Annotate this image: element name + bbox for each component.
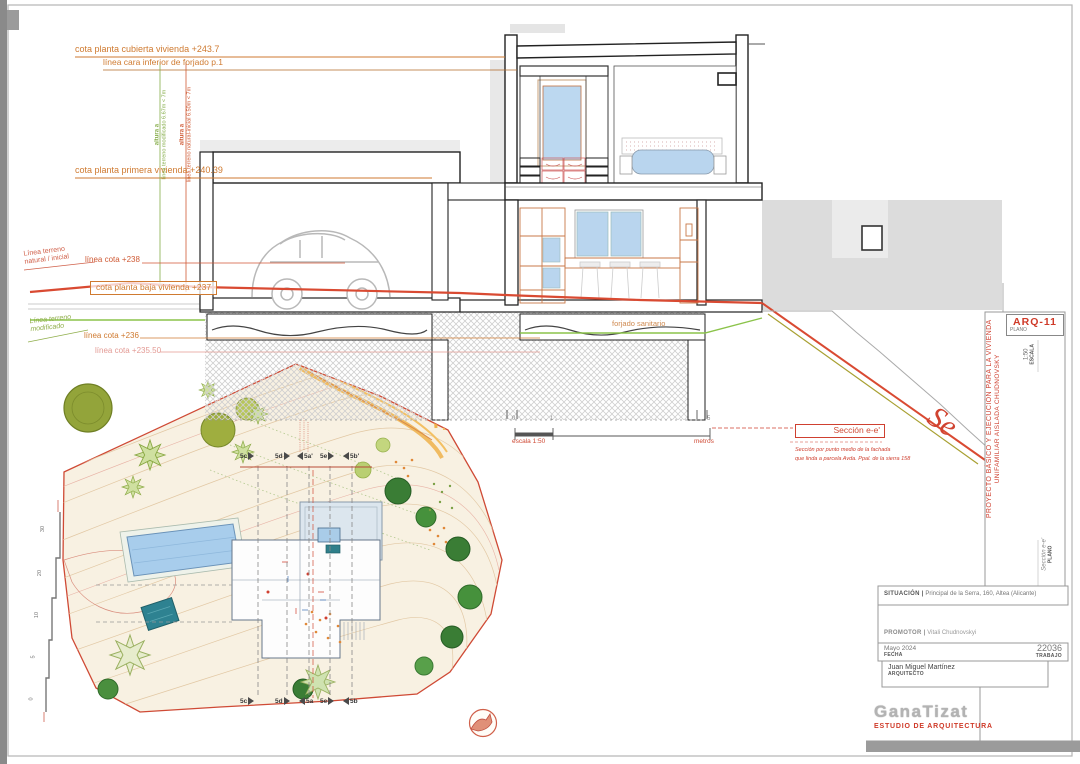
altura-mod-value: línea terreno modificado 6.67m < 7m — [161, 75, 167, 195]
annotation-cota-primera: cota planta primera vivienda +240.39 — [75, 165, 223, 175]
arrow-right-icon — [284, 452, 290, 460]
fecha-value: Mayo 2024 — [884, 645, 916, 652]
scale-label: escala 1:50 — [512, 438, 545, 445]
arrow-right-icon — [328, 697, 334, 705]
marker-label: 5c — [240, 698, 247, 705]
drawing-sheet: cota planta cubierta vivienda +243.7 lín… — [0, 0, 1080, 764]
fecha-block: Mayo 2024 FECHA — [884, 645, 916, 658]
scale-tick-0: 0 — [512, 416, 515, 423]
section-marker-5e-top: 5e — [320, 452, 334, 460]
annotation-cota-baja: cota planta baja vivienda +237 — [90, 281, 217, 295]
ruler-30: 30 — [40, 526, 46, 532]
arrow-left-icon — [343, 697, 349, 705]
annotation-linea-23550: línea cota +235.50 — [95, 346, 161, 355]
marker-label: 5a — [306, 698, 313, 705]
section-marker-5a-bottom: 5a — [299, 697, 313, 705]
arquitecto-block: Juan Miguel Martínez ARQUITECTO — [888, 664, 955, 677]
arrow-right-icon — [248, 697, 254, 705]
scale-tick-5: 5 — [707, 416, 710, 423]
promotor-value: Vitali Chudnovskyi — [927, 630, 976, 636]
studio-logo-tagline: ESTUDIO DE ARQUITECTURA — [874, 723, 993, 731]
upper-floor — [505, 35, 765, 200]
page-corner-tab — [7, 10, 19, 30]
scale-unit: metros — [694, 438, 714, 445]
section-marker-5c-bottom: 5c — [240, 697, 254, 705]
section-marker-5d-top: 5d — [275, 452, 290, 460]
section-marker-5b-bottom: 5b — [343, 697, 358, 705]
arrow-right-icon — [248, 452, 254, 460]
arquitecto-label: ARQUITECTO — [888, 671, 955, 677]
ruler-0: 0 — [29, 697, 35, 700]
section-note-line1: Sección por punto medio de la fachada — [795, 446, 910, 455]
trabajo-value: 22036 — [1010, 643, 1062, 653]
ruler-5: 5 — [31, 655, 37, 658]
section-marker-5d-bottom: 5d — [275, 697, 290, 705]
annotation-linea-238: línea cota +238 — [85, 255, 140, 264]
trabajo-label: TRABAJO — [1010, 653, 1062, 659]
marker-label: 5d — [275, 698, 283, 705]
studio-logo: GanaTizat ESTUDIO DE ARQUITECTURA — [874, 702, 993, 731]
section-title: Sección e-e' — [795, 424, 885, 438]
marker-label: 5d — [275, 453, 283, 460]
project-title-line1: PROYECTO BÁSICO Y EJECUCIÓN PARA LA VIVI… — [986, 284, 994, 554]
arrow-left-icon — [297, 452, 303, 460]
project-title: PROYECTO BÁSICO Y EJECUCIÓN PARA LA VIVI… — [986, 284, 1002, 554]
north-symbol-icon — [470, 710, 497, 737]
studio-logo-name: GanaTizat — [874, 702, 993, 722]
marker-label: 5e — [320, 453, 327, 460]
ruler-10: 10 — [34, 612, 40, 618]
project-title-line2: UNIFAMILIAR AISLADA CHUDNOVSKY — [994, 284, 1001, 554]
kitchen-window — [577, 212, 608, 256]
marker-label: 5a' — [304, 453, 313, 460]
marker-label: 5e — [320, 698, 327, 705]
section-marker-5b-top: 5b' — [343, 452, 359, 460]
arrow-left-icon — [299, 697, 305, 705]
section-marker-5e-bottom: 5e — [320, 697, 334, 705]
situacion-value: Principal de la Serra, 160, Altea (Alica… — [925, 591, 1036, 597]
trabajo-block: 22036 TRABAJO — [1010, 643, 1062, 659]
annotation-linea-236: línea cota +236 — [84, 331, 139, 340]
altura-mod-label: altura a — [154, 75, 161, 195]
arquitecto-value: Juan Miguel Martínez — [888, 664, 955, 671]
fecha-label: FECHA — [884, 652, 916, 658]
plano-caption: PLANO — [1049, 514, 1055, 594]
scale-caption: ESCALA — [1031, 332, 1037, 376]
ground-floor-kitchen — [505, 200, 706, 305]
section-note: Sección por punto medio de la fachada qu… — [795, 446, 910, 464]
marker-label: 5b' — [350, 453, 359, 460]
section-marker-5c-top: 5c — [240, 452, 254, 460]
ruler-20: 20 — [37, 570, 43, 576]
altura-nat-label: altura a — [179, 75, 186, 195]
promotor-label: PROMOTOR | — [884, 630, 926, 636]
situacion-row: SITUACIÓN | Principal de la Serra, 160, … — [884, 591, 1036, 597]
scale-block: 1:50 ESCALA — [1024, 332, 1037, 376]
marker-label: 5b — [350, 698, 358, 705]
altura-nat-value: línea terreno natural-inicial 6.50m < 7m — [186, 75, 192, 195]
marker-label: 5c — [240, 453, 247, 460]
situacion-label: SITUACIÓN | — [884, 591, 924, 597]
annotation-forjado-sanitario: forjado sanitario — [612, 320, 665, 329]
plan-ruler — [44, 500, 60, 722]
scale-tick-1: 1 — [550, 416, 553, 423]
garage-wing — [200, 152, 505, 310]
arrow-right-icon — [328, 452, 334, 460]
section-note-line2: que linda a parcela Avda. Ppal. de la si… — [795, 455, 910, 464]
promotor-row: PROMOTOR | Vitali Chudnovskyi — [884, 630, 976, 636]
page-edge-shadow — [0, 0, 7, 764]
arrow-left-icon — [343, 452, 349, 460]
annotation-altura-natural: altura a línea terreno natural-inicial 6… — [179, 75, 192, 195]
annotation-altura-modificado: altura a línea terreno modificado 6.67m … — [154, 75, 167, 195]
annotation-linea-inferior-forjado: línea cara inferior de forjado p.1 — [103, 58, 223, 68]
bar-stools — [580, 262, 660, 298]
annotation-cota-cubierta: cota planta cubierta vivienda +243.7 — [75, 44, 219, 54]
page-bottom-shadow — [866, 741, 1080, 752]
bed — [632, 150, 714, 174]
car — [252, 231, 390, 309]
section-marker-5a-top: 5a' — [297, 452, 313, 460]
arrow-right-icon — [284, 697, 290, 705]
plano-block: Sección e-e' PLANO — [1042, 514, 1055, 594]
